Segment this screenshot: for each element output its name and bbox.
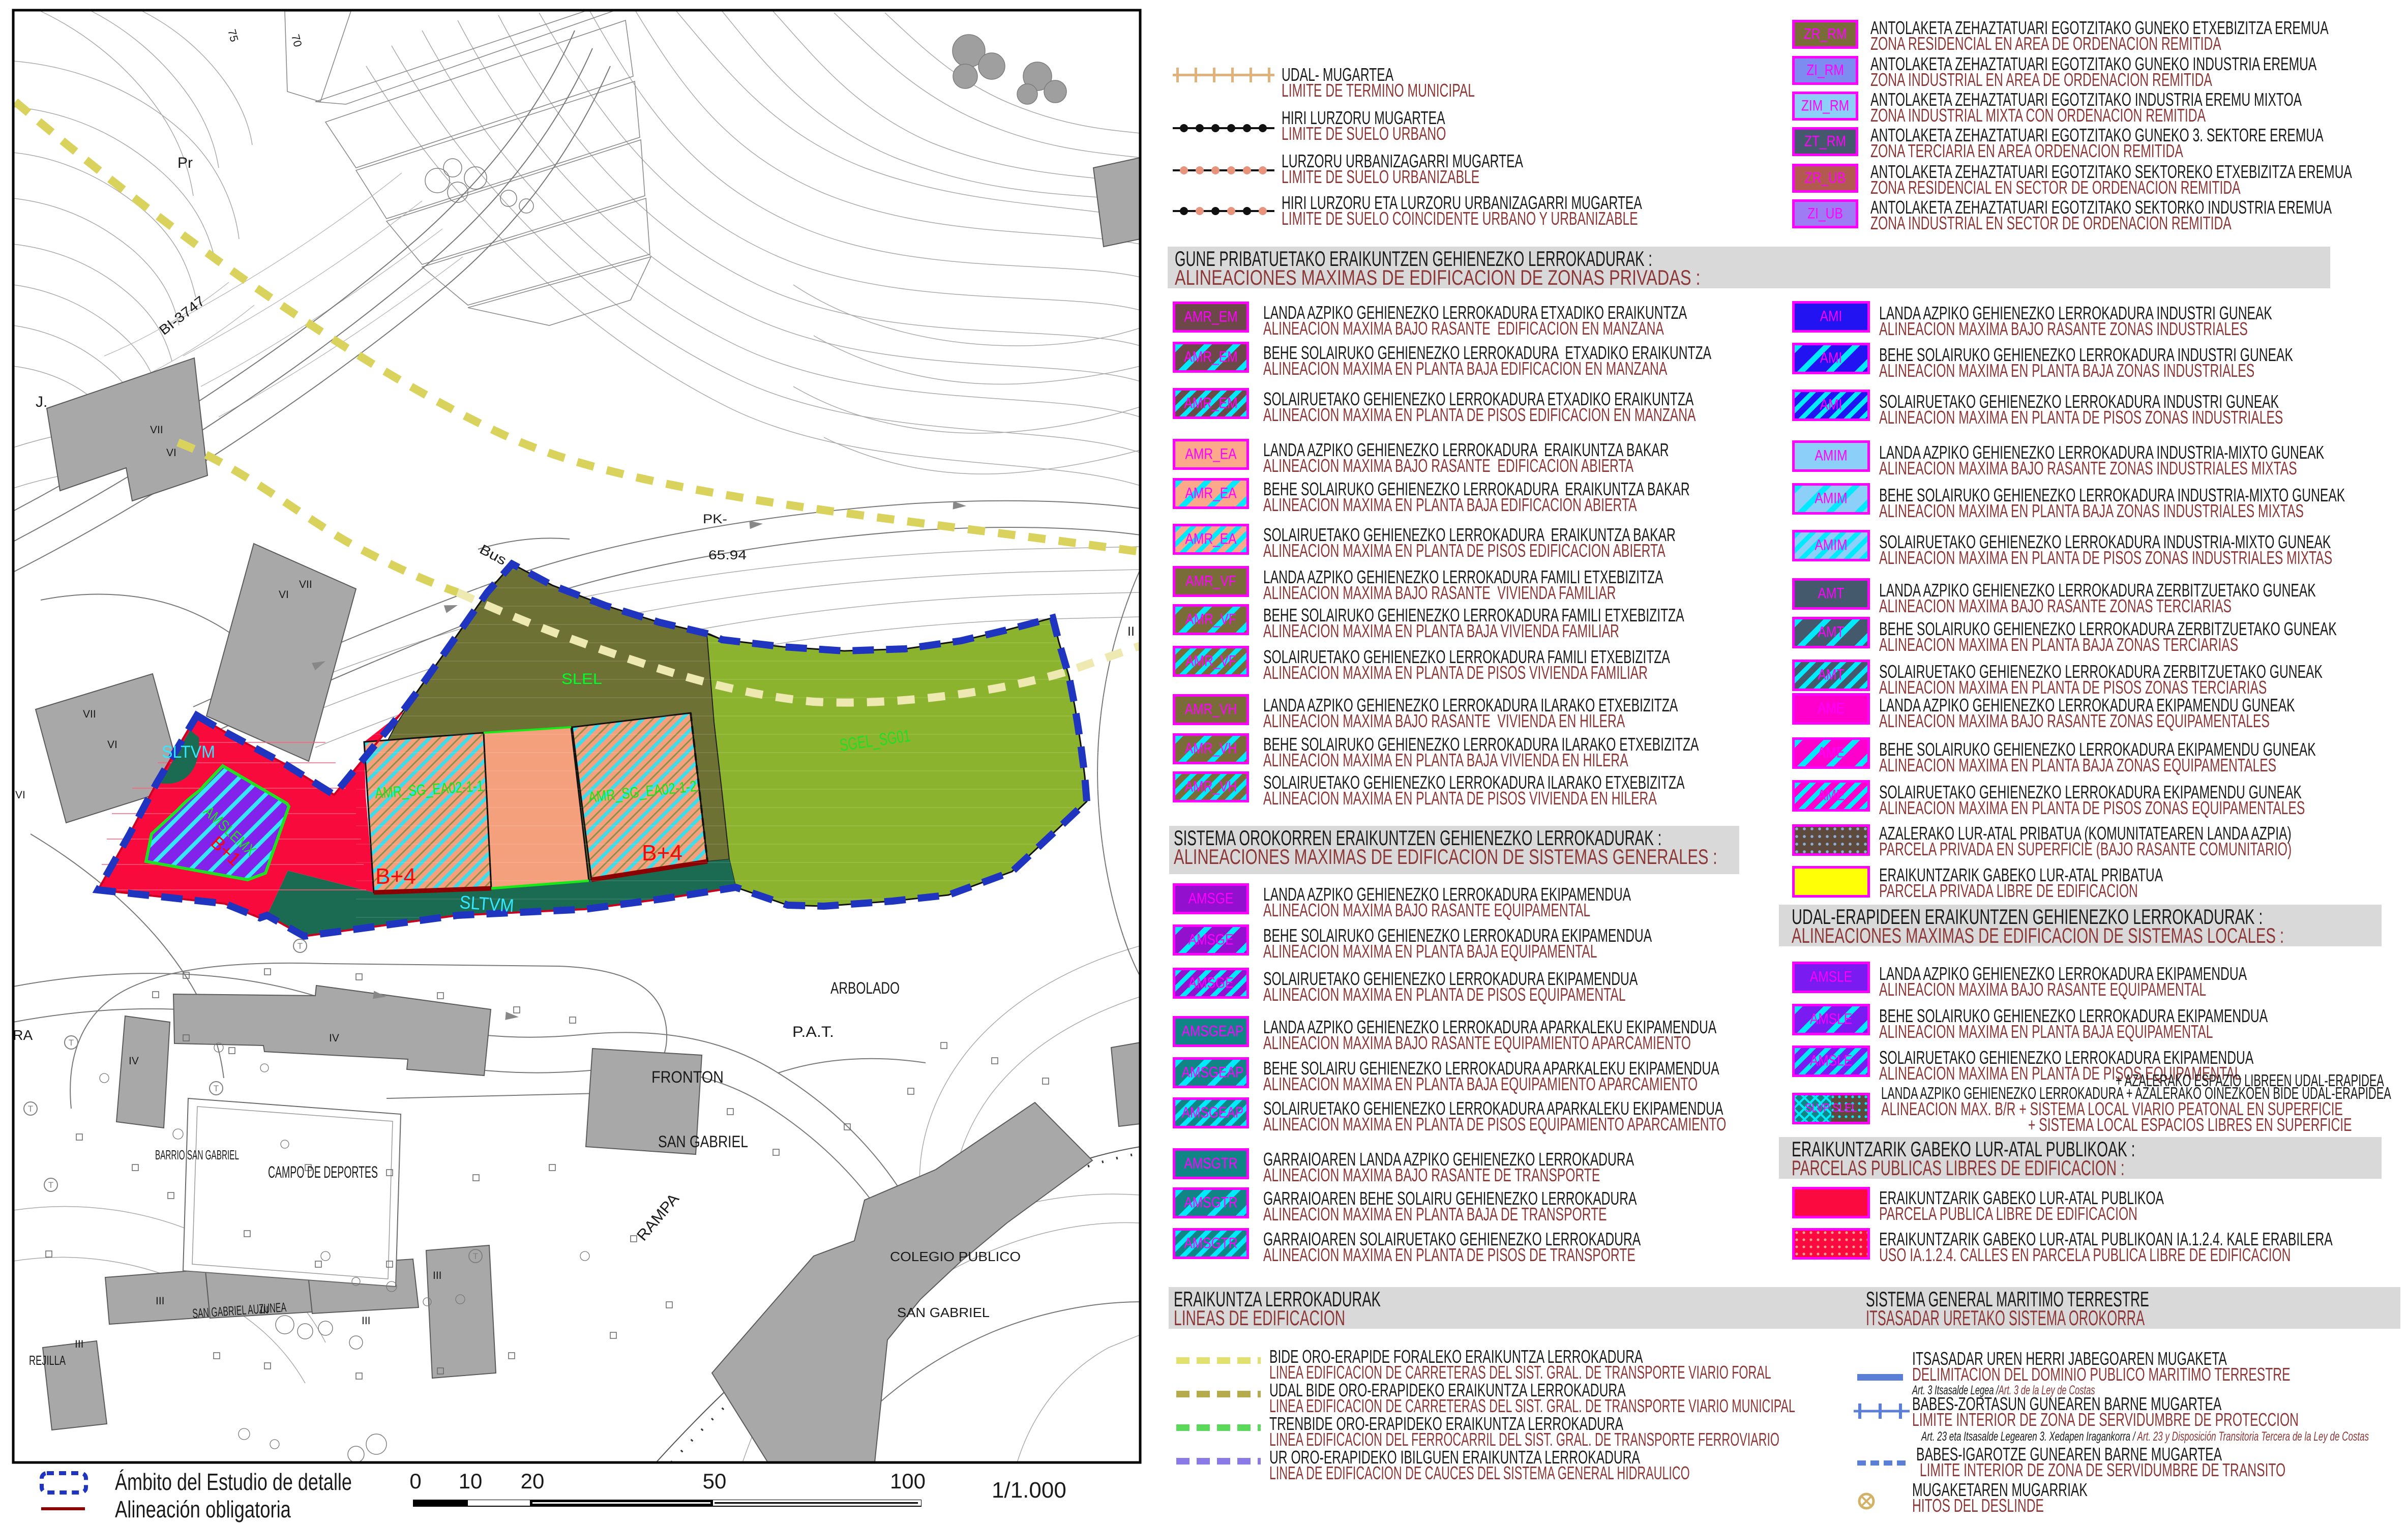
svg-text:65.94: 65.94	[708, 548, 747, 562]
svg-text:COLEGIO PUBLICO: COLEGIO PUBLICO	[890, 1249, 1021, 1264]
svg-text:B+4: B+4	[375, 864, 416, 889]
svg-text:IV: IV	[129, 1055, 139, 1067]
svg-text:ARBOLADO: ARBOLADO	[830, 979, 900, 997]
svg-text:T: T	[214, 1084, 219, 1093]
svg-text:II: II	[1127, 624, 1135, 639]
svg-text:Pr: Pr	[177, 155, 193, 171]
svg-text:VI: VI	[15, 789, 25, 801]
svg-text:FRONTON: FRONTON	[651, 1068, 724, 1086]
svg-text:P.A.T.: P.A.T.	[792, 1024, 834, 1040]
svg-text:T: T	[48, 1180, 53, 1190]
svg-text:IV: IV	[329, 1032, 339, 1044]
svg-text:CAMPO DE DEPORTES: CAMPO DE DEPORTES	[268, 1163, 378, 1181]
svg-text:REJILLA: REJILLA	[29, 1353, 66, 1368]
svg-text:SLTVM: SLTVM	[459, 891, 515, 916]
svg-text:VI: VI	[107, 739, 117, 751]
svg-text:VII: VII	[299, 579, 312, 590]
svg-text:VII: VII	[83, 708, 96, 720]
svg-text:SLEL: SLEL	[561, 671, 602, 688]
svg-text:URA: URA	[3, 1027, 33, 1043]
svg-text:T: T	[69, 1038, 74, 1048]
svg-text:III: III	[362, 1315, 371, 1327]
svg-text:VI: VI	[279, 589, 289, 601]
svg-text:VI: VI	[166, 447, 176, 459]
svg-text:BARRIO SAN GABRIEL: BARRIO SAN GABRIEL	[155, 1147, 239, 1162]
svg-text:J.: J.	[36, 394, 47, 410]
svg-text:VII: VII	[150, 424, 163, 436]
svg-text:III: III	[75, 1338, 84, 1350]
svg-text:T: T	[473, 1251, 478, 1261]
svg-text:T: T	[298, 941, 303, 951]
svg-text:B+4: B+4	[642, 841, 682, 865]
svg-text:SAN GABRIEL: SAN GABRIEL	[897, 1305, 990, 1320]
svg-text:III: III	[260, 1304, 269, 1316]
svg-text:SAN GABRIEL: SAN GABRIEL	[658, 1132, 748, 1151]
svg-text:III: III	[156, 1295, 165, 1307]
svg-text:SLTVM: SLTVM	[162, 742, 215, 762]
svg-text:T: T	[28, 1104, 33, 1114]
svg-text:PK-: PK-	[703, 512, 727, 526]
svg-text:III: III	[433, 1270, 442, 1281]
